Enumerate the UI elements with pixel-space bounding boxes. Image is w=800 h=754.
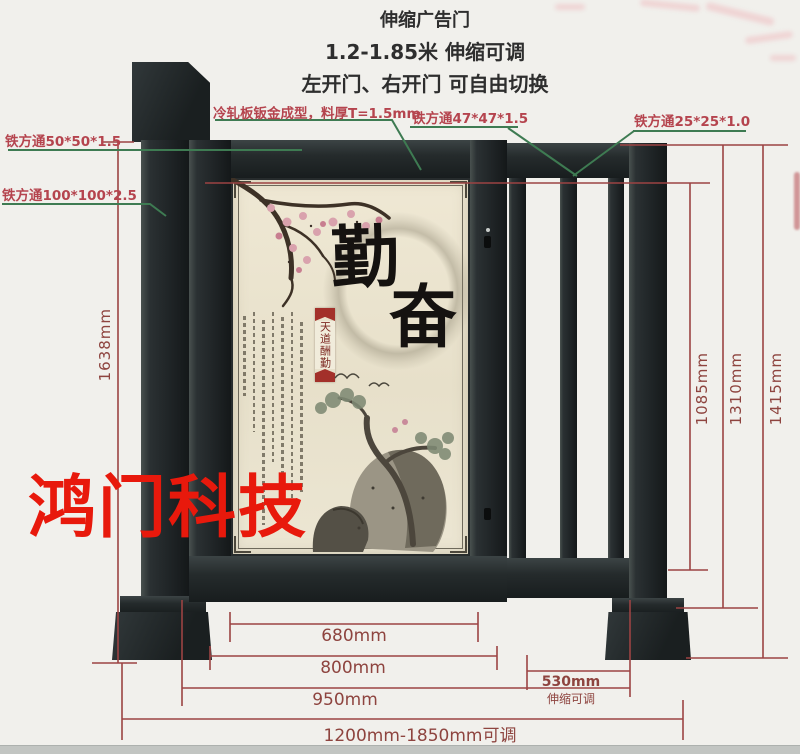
poem-column bbox=[272, 312, 275, 462]
dim-680-label: 680mm bbox=[309, 626, 399, 646]
right-post-base-cap bbox=[612, 598, 684, 614]
dim-1638-label: 1638mm bbox=[96, 308, 114, 381]
left-post-pedestal bbox=[112, 612, 212, 660]
gate-bottom-rail bbox=[189, 556, 507, 602]
callout-cold-rolled-label: 冷轧板钣金成型，料厚T=1.5mm bbox=[213, 102, 421, 122]
poem-column bbox=[253, 312, 256, 432]
seal-cap bbox=[315, 308, 335, 321]
callout-tube-100-label: 铁方通100*100*2.5 bbox=[2, 184, 137, 204]
motor-housing bbox=[132, 62, 210, 142]
callout-tube-25-label: 铁方通25*25*1.0 bbox=[634, 110, 750, 130]
dim-530-label: 530mm bbox=[526, 674, 616, 690]
telescopic-bar bbox=[608, 178, 624, 568]
photo-smudge bbox=[794, 172, 800, 230]
gate-handle-knob bbox=[484, 508, 491, 520]
poem-column bbox=[243, 316, 246, 396]
seal-body: 天道酬勤 bbox=[315, 321, 335, 369]
dim-1415-label: 1415mm bbox=[767, 352, 785, 425]
seal-text: 天道酬勤 bbox=[320, 321, 331, 369]
photo-smudge bbox=[705, 2, 775, 27]
panel-corner-ornament bbox=[450, 181, 467, 198]
right-post bbox=[629, 143, 667, 600]
telescopic-bar bbox=[509, 178, 526, 568]
product-subtitle-switch: 左开门、右开门 可自由切换 bbox=[230, 68, 620, 97]
telescopic-bar bbox=[560, 178, 577, 568]
right-post-pedestal bbox=[605, 612, 691, 660]
photo-smudge bbox=[745, 31, 794, 45]
dim-950-label: 950mm bbox=[300, 690, 390, 710]
dim-530-note: 伸缩可调 bbox=[526, 690, 616, 707]
photo-smudge bbox=[770, 55, 796, 61]
product-diagram: 勤 奋 天道酬勤 bbox=[0, 0, 800, 754]
dim-1085-label: 1085mm bbox=[693, 352, 711, 425]
rock-tree-art bbox=[293, 388, 470, 556]
hinge-highlight bbox=[486, 228, 490, 232]
calligraphy-char-fen: 奋 bbox=[389, 284, 457, 352]
gate-top-rail bbox=[189, 140, 507, 178]
gate-right-stile bbox=[470, 140, 507, 602]
photo-smudge bbox=[640, 0, 700, 12]
watermark-text: 鸿门科技 bbox=[28, 452, 308, 551]
dim-800-label: 800mm bbox=[308, 658, 398, 678]
product-subtitle-range: 1.2-1.85米 伸缩可调 bbox=[230, 36, 620, 65]
dim-1310-label: 1310mm bbox=[727, 352, 745, 425]
callout-tube-50-label: 铁方通50*50*1.5 bbox=[5, 130, 121, 150]
photo-edge-strip bbox=[0, 745, 800, 754]
callout-tube-47-label: 铁方通47*47*1.5 bbox=[412, 107, 528, 127]
dim-total-width-label: 1200mm-1850mm可调 bbox=[315, 721, 525, 746]
gate-lock-knob bbox=[484, 236, 491, 248]
product-title: 伸缩广告门 bbox=[230, 6, 620, 32]
